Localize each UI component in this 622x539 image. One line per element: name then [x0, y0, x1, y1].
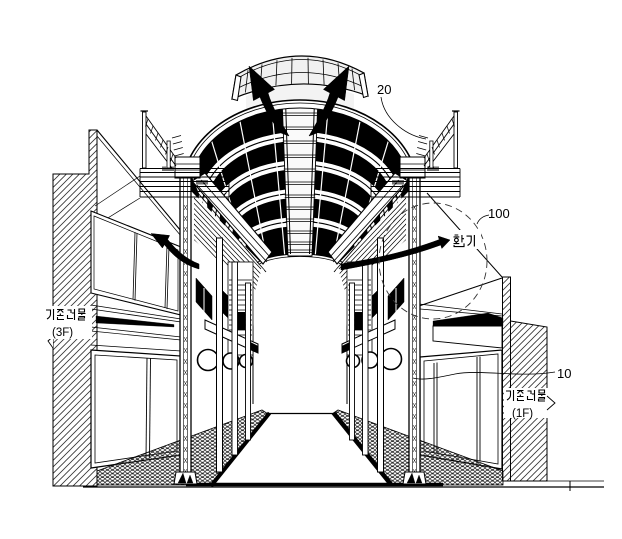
svg-text:(3F): (3F) [52, 327, 73, 339]
svg-text:100: 100 [488, 206, 510, 221]
svg-text:(1F): (1F) [512, 408, 533, 420]
svg-text:10: 10 [557, 366, 571, 381]
svg-text:20: 20 [377, 82, 391, 97]
